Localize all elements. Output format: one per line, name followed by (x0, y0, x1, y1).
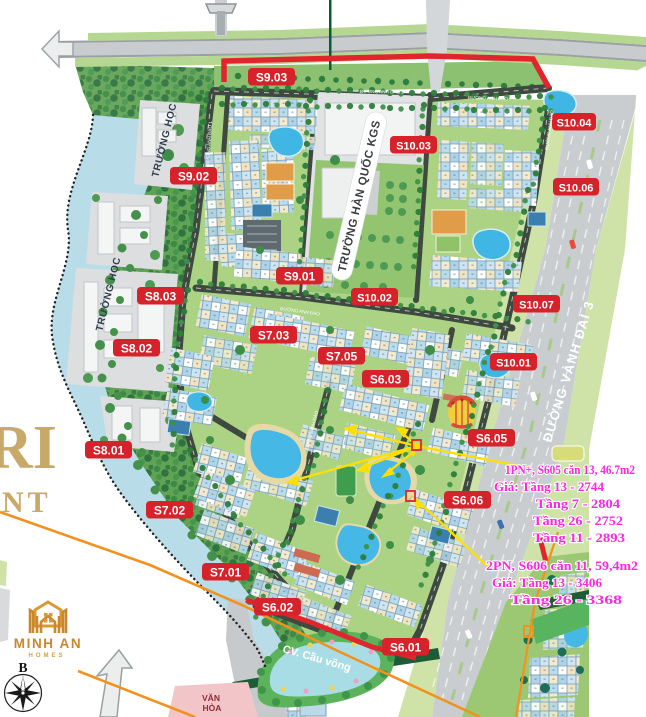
svg-text:S10.07: S10.07 (519, 300, 554, 312)
svg-text:MINH AN: MINH AN (14, 636, 82, 651)
svg-text:B: B (18, 660, 27, 675)
svg-text:Tầng 26 - 2752: Tầng 26 - 2752 (533, 513, 623, 528)
svg-text:S6.03: S6.03 (370, 373, 402, 387)
svg-text:S10.01: S10.01 (496, 358, 531, 370)
svg-text:S6.01: S6.01 (390, 641, 422, 655)
svg-text:Tầng 26 - 3368: Tầng 26 - 3368 (510, 592, 623, 607)
svg-text:HÒA: HÒA (203, 702, 222, 713)
svg-text:S6.06: S6.06 (452, 494, 484, 508)
svg-text:S10.06: S10.06 (559, 183, 594, 195)
svg-text:S8.02: S8.02 (121, 342, 153, 356)
svg-text:S8.03: S8.03 (145, 290, 177, 304)
svg-text:S9.03: S9.03 (256, 71, 288, 85)
svg-text:Giá: Tầng 13 - 2744: Giá: Tầng 13 - 2744 (494, 479, 604, 494)
svg-text:Giá: Tầng 13 - 3406: Giá: Tầng 13 - 3406 (492, 575, 602, 590)
svg-text:RI: RI (0, 414, 57, 482)
svg-text:S10.04: S10.04 (557, 118, 593, 130)
svg-text:Tầng 11 - 2893: Tầng 11 - 2893 (533, 530, 626, 545)
svg-text:HOMES: HOMES (28, 653, 65, 659)
svg-text:S9.02: S9.02 (178, 170, 210, 184)
svg-text:ĐƯỜNG ANH ĐÀO 2: ĐƯỜNG ANH ĐÀO 2 (360, 88, 404, 95)
svg-text:2PN, S606 căn 11, 59,4m2: 2PN, S606 căn 11, 59,4m2 (486, 558, 638, 573)
svg-text:S6.02: S6.02 (262, 601, 294, 615)
svg-text:1PN+, S605 căn 13, 46.7m2: 1PN+, S605 căn 13, 46.7m2 (505, 462, 635, 477)
svg-text:S7.02: S7.02 (154, 504, 186, 518)
svg-text:S10.02: S10.02 (357, 293, 392, 305)
svg-text:S7.03: S7.03 (258, 329, 290, 343)
svg-text:Tầng 7 - 2804: Tầng 7 - 2804 (536, 496, 621, 511)
svg-text:VĂN: VĂN (202, 693, 220, 703)
svg-text:S10.03: S10.03 (396, 141, 431, 153)
svg-text:S7.01: S7.01 (210, 566, 242, 580)
svg-text:S8.01: S8.01 (93, 444, 125, 458)
svg-text:S9.01: S9.01 (284, 270, 316, 284)
svg-text:NT: NT (2, 486, 52, 519)
svg-text:S6.05: S6.05 (476, 432, 508, 446)
svg-text:S7.05: S7.05 (326, 350, 358, 364)
